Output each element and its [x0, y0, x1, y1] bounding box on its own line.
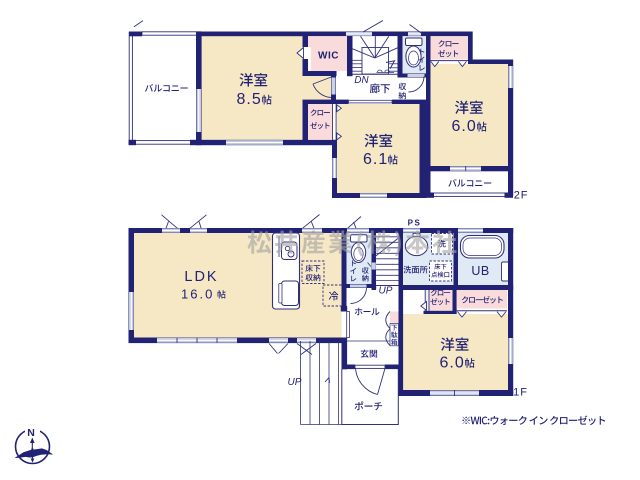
svg-text:DN: DN: [354, 75, 369, 86]
svg-text:16.0: 16.0: [181, 287, 214, 302]
svg-text:2F: 2F: [514, 189, 528, 201]
svg-text:UP: UP: [379, 286, 393, 297]
svg-text:8.5: 8.5: [237, 91, 262, 108]
svg-text:6.0: 6.0: [440, 354, 465, 371]
svg-text:6.1: 6.1: [363, 151, 388, 168]
svg-text:1F: 1F: [513, 386, 528, 398]
svg-text:UB: UB: [471, 264, 489, 278]
svg-text:WIC: WIC: [318, 51, 339, 62]
svg-text:UP: UP: [288, 377, 302, 388]
svg-text:PS: PS: [408, 219, 422, 228]
svg-text:LDK: LDK: [184, 269, 218, 285]
svg-text:N: N: [27, 427, 35, 439]
svg-text:6.0: 6.0: [452, 118, 477, 135]
